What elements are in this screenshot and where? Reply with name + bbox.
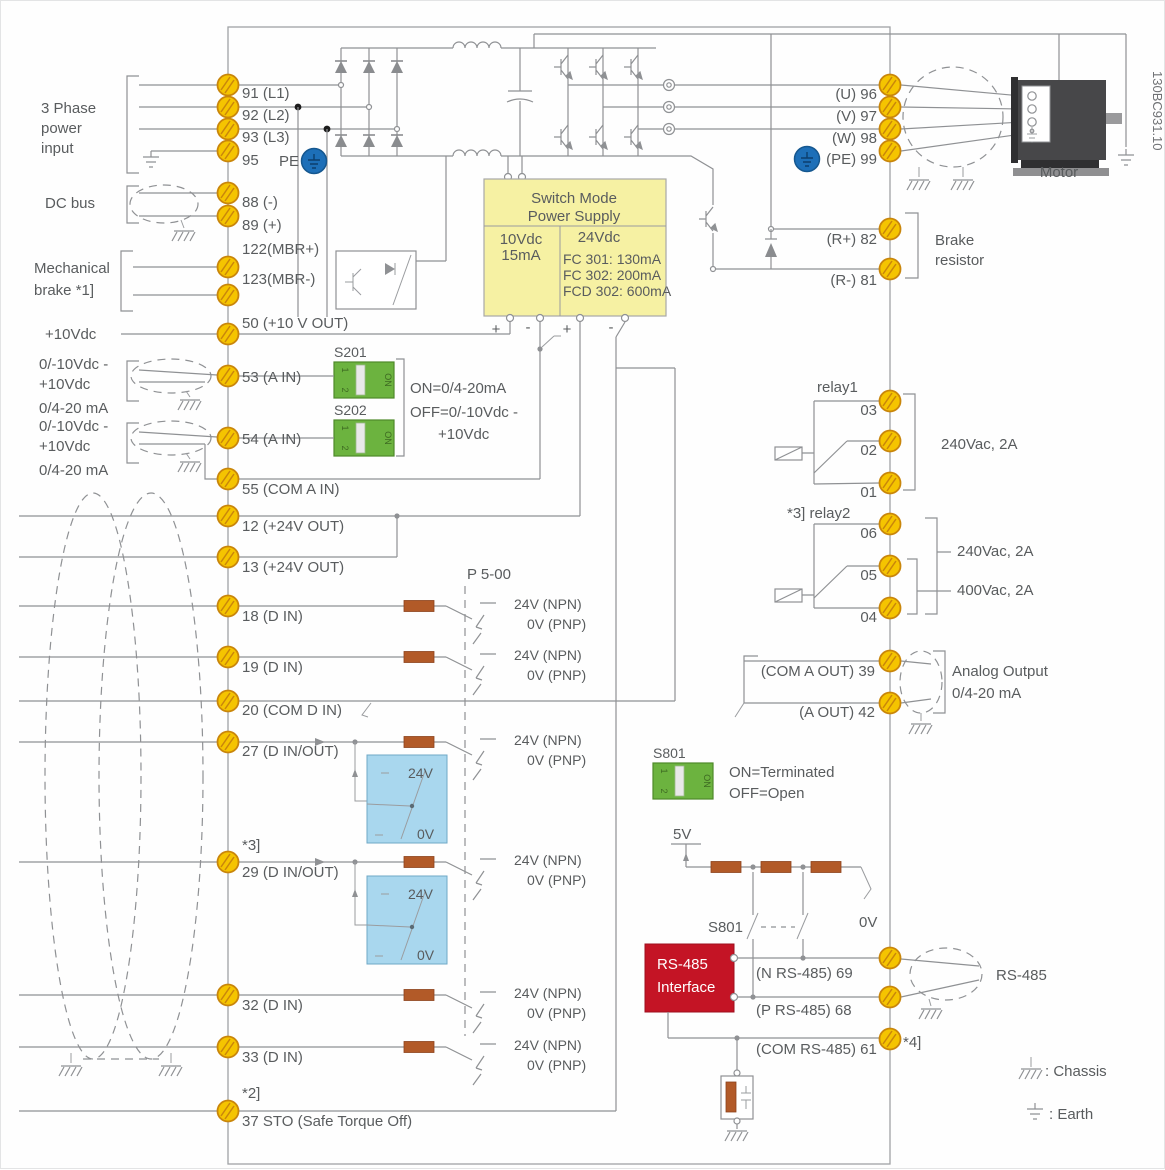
mech-brake-group: Mechanical brake *1] [34, 251, 217, 311]
label-aout-2: 0/4-20 mA [952, 685, 1021, 702]
control-cable-shields [45, 493, 203, 1076]
smps-10v: 10Vdc [500, 231, 543, 248]
label-s801: S801 [653, 745, 686, 761]
resistor-icon [811, 862, 841, 873]
resistor-icon [761, 862, 791, 873]
terminal-04 [880, 598, 901, 619]
wiring-diagram-page: 3 Phase power input DC bus Mechanical br… [0, 0, 1165, 1169]
note-s20x-off: OFF=0/-10Vdc - [410, 404, 518, 421]
label-t33: 33 (D IN) [242, 1049, 303, 1066]
dip-switch-s201: S201 1 2 ON [334, 344, 394, 398]
label-t122: 122(MBR+) [242, 241, 319, 258]
label-ain1-range1: 0/-10Vdc - [39, 356, 108, 373]
label-0v-term: 0V [859, 914, 877, 931]
label-box29-0v: 0V [417, 947, 435, 963]
npn-pnp-selector-icon [446, 603, 496, 644]
three-phase-input-group: 3 Phase power input [41, 76, 217, 173]
terminal-18 [218, 596, 239, 617]
inductor-icon [453, 150, 501, 156]
label-pnp-19: 0V (PNP) [527, 667, 586, 683]
cable-shield-icon [130, 185, 198, 223]
label-t37: 37 STO (Safe Torque Off) [242, 1113, 412, 1130]
note-s801-off: OFF=Open [729, 785, 804, 802]
terminal-82 [880, 219, 901, 240]
terminal-81 [880, 259, 901, 280]
label-rs485-box-1: RS-485 [657, 956, 708, 973]
terminal-37 [218, 1101, 239, 1122]
terminal-03 [880, 391, 901, 412]
terminal-91 [218, 75, 239, 96]
label-r2-05: 05 [860, 567, 877, 584]
rectifier-bridge [335, 48, 403, 156]
label-r1-02: 02 [860, 442, 877, 459]
terminal-20 [218, 691, 239, 712]
label-relay1-rating: 240Vac, 2A [941, 436, 1017, 453]
label-t19: 19 (D IN) [242, 659, 303, 676]
smps-fc301: FC 301: 130mA [563, 251, 662, 267]
npn-pnp-selector-icon [446, 1044, 496, 1085]
smps-plus-24: + [563, 321, 572, 338]
cable-shield-icon [131, 359, 211, 393]
terminal-19 [218, 647, 239, 668]
label-t82: (R+) 82 [827, 231, 877, 248]
note-s801-on: ON=Terminated [729, 764, 834, 781]
npn-pnp-selector-icon [446, 859, 496, 900]
chassis-icon [178, 462, 201, 472]
label-ain2-range1: 0/-10Vdc - [39, 418, 108, 435]
terminal-98 [880, 119, 901, 140]
label-param-5-00: P 5-00 [467, 566, 511, 583]
label-ain2-ma: 0/4-20 mA [39, 462, 108, 479]
smps-24v: 24Vdc [578, 229, 621, 246]
label-t61: (COM RS-485) 61 [756, 1041, 877, 1058]
dc-bus-group: DC bus [45, 185, 217, 241]
label-rs485-box-2: Interface [657, 979, 715, 996]
resistor-icon [404, 1042, 434, 1053]
chassis-icon [951, 180, 974, 190]
brake-resistor-group: Brake resistor [905, 213, 984, 278]
motor-group: Motor [901, 67, 1122, 190]
dip1-pos1: 1 [340, 367, 350, 372]
terminal-32 [218, 985, 239, 1006]
label-t88: 88 (-) [242, 194, 278, 211]
smps-minus-24: - [609, 319, 614, 336]
terminal-123 [218, 285, 239, 306]
label-t91: 91 (L1) [242, 85, 290, 102]
label-dc-bus: DC bus [45, 195, 95, 212]
label-t39: (COM A OUT) 39 [761, 663, 875, 680]
terminal-55 [218, 469, 239, 490]
label-brake-1: Brake [935, 232, 974, 249]
label-note4: *4] [903, 1034, 921, 1051]
label-ain1-ma: 0/4-20 mA [39, 400, 108, 417]
dip-switch-s202: S202 1 2 ON [334, 402, 394, 456]
terminal-96 [880, 75, 901, 96]
label-box27-0v: 0V [417, 826, 435, 842]
note-s20x-off2: +10Vdc [438, 426, 490, 443]
terminal-95 [218, 141, 239, 162]
analog-in-53-group: 0/-10Vdc - +10Vdc 0/4-20 mA [39, 356, 217, 417]
resistor-icon [711, 862, 741, 873]
io-mode-box-29: 24V 0V [367, 876, 447, 964]
label-npn-33: 24V (NPN) [514, 1037, 582, 1053]
legend-earth: : Earth [1049, 1106, 1093, 1123]
label-box29-24v: 24V [408, 886, 434, 902]
label-relay2-240: 240Vac, 2A [957, 543, 1033, 560]
label-t81: (R-) 81 [830, 272, 877, 289]
label-pnp-33: 0V (PNP) [527, 1057, 586, 1073]
terminal-labels-right: (U) 96 (V) 97 (W) 98 (PE) 99 (R+) 82 (R-… [826, 86, 877, 626]
label-motor: Motor [1040, 164, 1078, 181]
terminal-93 [218, 119, 239, 140]
label-t12: 12 (+24V OUT) [242, 518, 344, 535]
terminal-97 [880, 97, 901, 118]
terminal-13 [218, 547, 239, 568]
label-s201: S201 [334, 344, 367, 360]
dip1-pos2: 2 [340, 387, 350, 392]
chassis-icon [907, 180, 930, 190]
label-t55: 55 (COM A IN) [242, 481, 340, 498]
chassis-icon [59, 1066, 82, 1076]
label-mech-brake-2: brake *1] [34, 282, 94, 299]
label-ain1-range2: +10Vdc [39, 376, 91, 393]
rs485-interface-box: RS-485 Interface [645, 944, 738, 1012]
label-npn-29: 24V (NPN) [514, 852, 582, 868]
brake-option-module [336, 156, 446, 309]
earth-icon [1118, 149, 1134, 165]
label-pnp-29: 0V (PNP) [527, 872, 586, 888]
earth-icon [1027, 1103, 1043, 1119]
dip2-pos2: 2 [340, 445, 350, 450]
pe-ground-icon [302, 149, 327, 174]
label-t54: 54 (A IN) [242, 431, 301, 448]
legend-chassis: : Chassis [1045, 1063, 1107, 1080]
label-brake-2: resistor [935, 252, 984, 269]
label-mech-brake-1: Mechanical [34, 260, 110, 277]
terminal-39 [880, 651, 901, 672]
label-t32: 32 (D IN) [242, 997, 303, 1014]
label-t97: (V) 97 [836, 108, 877, 125]
label-note3: *3] [242, 837, 260, 854]
terminal-06 [880, 514, 901, 535]
label-npn-19: 24V (NPN) [514, 647, 582, 663]
terminal-02 [880, 431, 901, 452]
resistor-icon [404, 652, 434, 663]
label-three-phase-1: 3 Phase [41, 100, 96, 117]
resistor-icon [404, 857, 434, 868]
terminal-05 [880, 556, 901, 577]
terminal-29 [218, 852, 239, 873]
label-t13: 13 (+24V OUT) [242, 559, 344, 576]
chassis-icon [909, 724, 932, 734]
label-note2: *2] [242, 1085, 260, 1102]
label-t89: 89 (+) [242, 217, 282, 234]
terminal-27 [218, 732, 239, 753]
note-s20x-on: ON=0/4-20mA [410, 380, 506, 397]
label-t68: (P RS-485) 68 [756, 1002, 852, 1019]
label-r2-06: 06 [860, 525, 877, 542]
earth-icon [143, 151, 159, 167]
dip3-pos1: 1 [659, 768, 669, 773]
terminal-92 [218, 97, 239, 118]
chassis-icon [1019, 1069, 1042, 1079]
label-relay1: relay1 [817, 379, 858, 396]
ground-legend: : Chassis : Earth [1019, 1057, 1107, 1123]
relay2-group: *3] relay2 240Vac, 2A 400Vac, 2A [775, 505, 1033, 614]
label-t53: 53 (A IN) [242, 369, 301, 386]
cable-shield-icon [131, 421, 211, 455]
terminal-01 [880, 473, 901, 494]
terminal-122 [218, 257, 239, 278]
label-t96: (U) 96 [835, 86, 877, 103]
terminal-54 [218, 428, 239, 449]
relay-coil-icon [775, 589, 802, 602]
terminal-69 [880, 948, 901, 969]
chassis-icon [178, 400, 201, 410]
label-pnp-27: 0V (PNP) [527, 752, 586, 768]
label-r1-03: 03 [860, 402, 877, 419]
chassis-icon [725, 1131, 748, 1141]
smps-plus-10: + [492, 321, 501, 338]
terminal-33 [218, 1037, 239, 1058]
chassis-icon [919, 1009, 942, 1019]
npn-pnp-selector-icon [446, 739, 496, 780]
label-pnp-32: 0V (PNP) [527, 1005, 586, 1021]
npn-pnp-selector-icon [446, 654, 496, 695]
label-t92: 92 (L2) [242, 107, 290, 124]
smps-fc302: FC 302: 200mA [563, 267, 662, 283]
relay-coil-icon [775, 447, 802, 460]
dc-link-capacitor [507, 48, 533, 156]
label-s801-switch: S801 [708, 919, 743, 936]
label-5v: 5V [673, 826, 691, 843]
label-t27: 27 (D IN/OUT) [242, 743, 339, 760]
npn-pnp-selector-icon [446, 992, 496, 1033]
dip1-on: ON [383, 373, 393, 387]
label-t69: (N RS-485) 69 [756, 965, 853, 982]
label-three-phase-3: input [41, 140, 74, 157]
resistor-icon [404, 601, 434, 612]
terminal-42 [880, 693, 901, 714]
label-rs485: RS-485 [996, 967, 1047, 984]
label-npn-32: 24V (NPN) [514, 985, 582, 1001]
label-t93: 93 (L3) [242, 129, 290, 146]
label-relay2: *3] relay2 [787, 505, 850, 522]
label-ain2-range2: +10Vdc [39, 438, 91, 455]
vfd-wiring-diagram: 3 Phase power input DC bus Mechanical br… [1, 1, 1165, 1170]
dip2-on: ON [383, 431, 393, 445]
label-aout-1: Analog Output [952, 663, 1049, 680]
label-three-phase-2: power [41, 120, 82, 137]
dip3-on: ON [702, 774, 712, 788]
motor-cable-shield-icon [903, 67, 1003, 167]
resistor-icon [404, 737, 434, 748]
terminal-12 [218, 506, 239, 527]
label-pnp-18: 0V (PNP) [527, 616, 586, 632]
inverter-bridge [554, 48, 642, 156]
chassis-icon [172, 231, 195, 241]
label-r1-01: 01 [860, 484, 877, 501]
label-t29: 29 (D IN/OUT) [242, 864, 339, 881]
rs485-cable: RS-485 [901, 948, 1047, 1019]
label-t99: (PE) 99 [826, 151, 877, 168]
smps-10v-ma: 15mA [501, 247, 540, 264]
label-pe: PE [279, 153, 299, 170]
pe-ground-icon [795, 147, 820, 172]
label-t95: 95 [242, 152, 259, 169]
label-npn-27: 24V (NPN) [514, 732, 582, 748]
label-t123: 123(MBR-) [242, 271, 315, 288]
resistor-icon [404, 990, 434, 1001]
label-r2-04: 04 [860, 609, 877, 626]
dip-switch-s801: S801 1 2 ON [653, 745, 713, 799]
label-t20: 20 (COM D IN) [242, 702, 342, 719]
smps-title-2: Power Supply [528, 208, 621, 225]
smps-minus-10: - [526, 319, 531, 336]
smps-box: Switch Mode Power Supply 10Vdc 15mA 24Vd… [484, 156, 672, 338]
terminal-53 [218, 366, 239, 387]
label-relay2-400: 400Vac, 2A [957, 582, 1033, 599]
terminal-50 [218, 324, 239, 345]
label-s202: S202 [334, 402, 367, 418]
smps-title-1: Switch Mode [531, 190, 617, 207]
label-npn-18: 24V (NPN) [514, 596, 582, 612]
io-mode-box-27: 24V 0V [367, 755, 447, 843]
terminal-89 [218, 206, 239, 227]
label-t50: 50 (+10 V OUT) [242, 315, 348, 332]
figure-code: 130BC931.10 [1150, 71, 1165, 151]
label-t98: (W) 98 [832, 130, 877, 147]
analog-in-54-group: 0/-10Vdc - +10Vdc 0/4-20 mA [39, 418, 217, 479]
terminal-61 [880, 1029, 901, 1050]
terminal-88 [218, 183, 239, 204]
smps-fcd302: FCD 302: 600mA [563, 283, 672, 299]
chassis-icon [159, 1066, 182, 1076]
label-box27-24v: 24V [408, 765, 434, 781]
label-t18: 18 (D IN) [242, 608, 303, 625]
terminal-99 [880, 141, 901, 162]
inductor-icon [453, 42, 501, 48]
dip2-pos1: 1 [340, 425, 350, 430]
terminal-68 [880, 987, 901, 1008]
label-t42: (A OUT) 42 [799, 704, 875, 721]
label-plus10: +10Vdc [45, 326, 97, 343]
dip3-pos2: 2 [659, 788, 669, 793]
